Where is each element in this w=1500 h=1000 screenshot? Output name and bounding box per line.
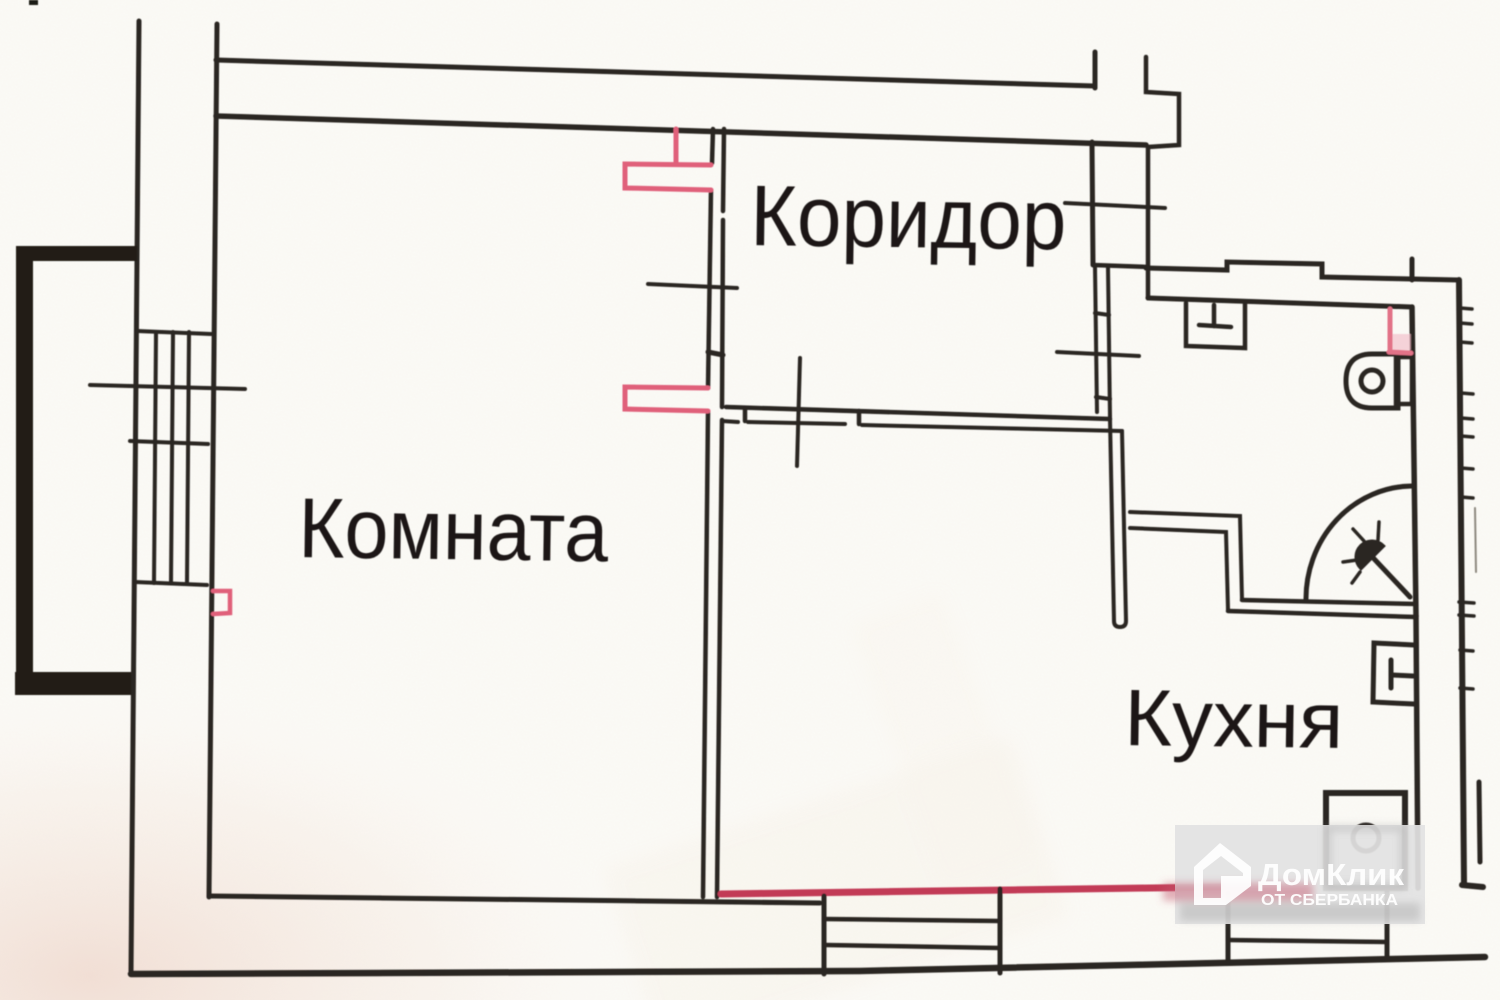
svg-text:Комната: Комната [298, 481, 610, 580]
svg-text:ДомКлик: ДомКлик [1258, 857, 1405, 892]
svg-text:Кухня: Кухня [1124, 673, 1344, 765]
svg-text:Коридор: Коридор [750, 168, 1067, 268]
svg-text:ОТ СБЕРБАНКА: ОТ СБЕРБАНКА [1261, 892, 1398, 909]
